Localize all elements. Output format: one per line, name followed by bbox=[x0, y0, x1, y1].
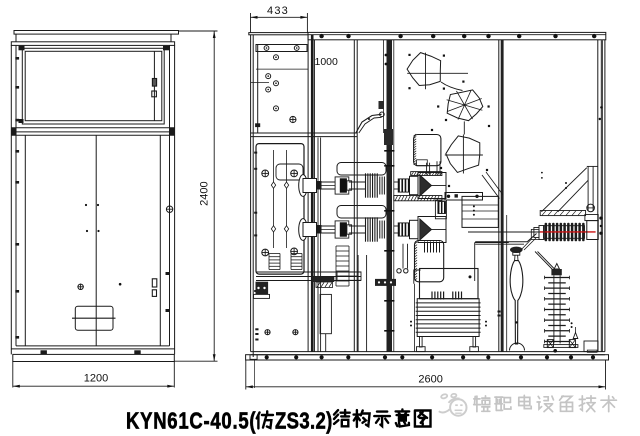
svg-text:2400: 2400 bbox=[199, 181, 211, 205]
svg-text:1200: 1200 bbox=[84, 373, 108, 385]
svg-text:2600: 2600 bbox=[418, 373, 442, 385]
svg-text:1000: 1000 bbox=[315, 56, 339, 68]
svg-text:ZS3.2): ZS3.2) bbox=[275, 409, 333, 434]
svg-text:KYN61C-40.5(: KYN61C-40.5( bbox=[126, 409, 256, 434]
svg-text:433: 433 bbox=[267, 5, 289, 17]
